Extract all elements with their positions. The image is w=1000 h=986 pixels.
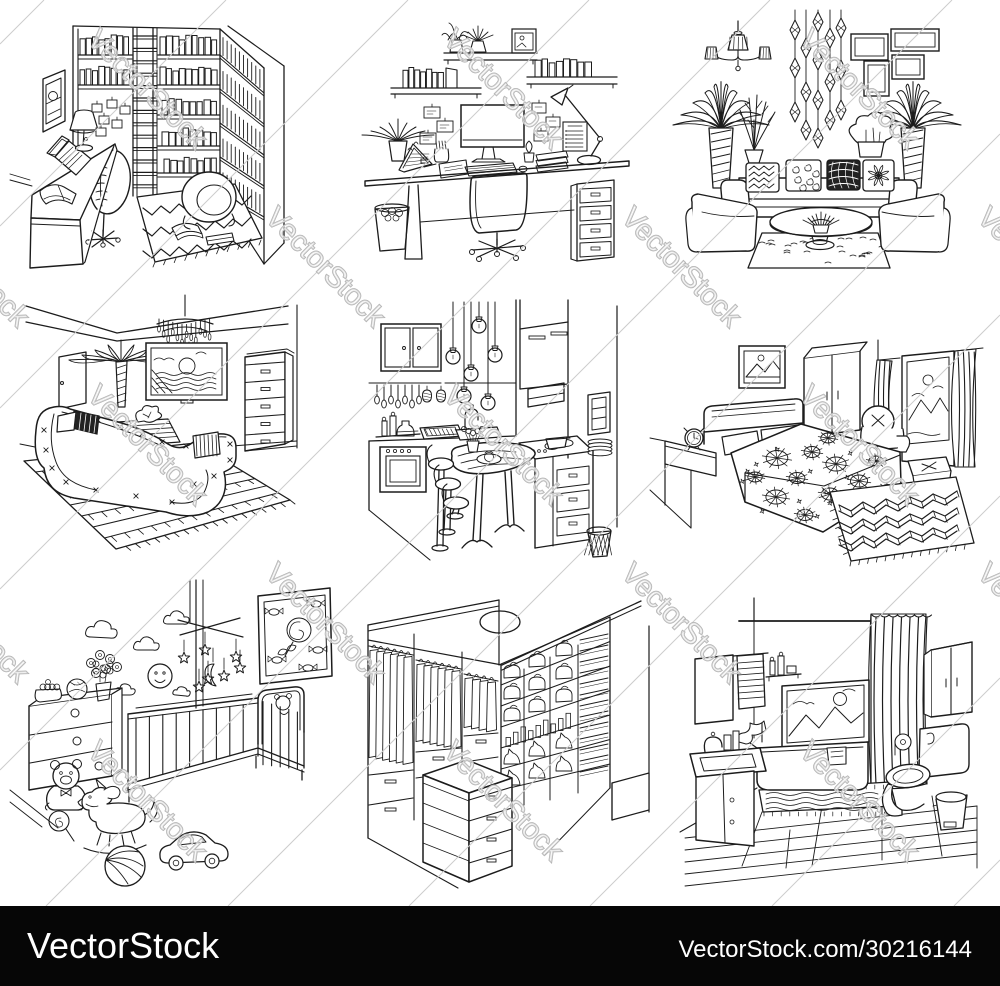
svg-text:VectorStock: VectorStock: [27, 925, 220, 966]
svg-text:VectorStock: VectorStock: [615, 557, 747, 689]
svg-text:VectorStock: VectorStock: [971, 557, 1000, 689]
svg-text:VectorStock: VectorStock: [971, 201, 1000, 333]
svg-text:VectorStock.com/30216144: VectorStock.com/30216144: [678, 936, 972, 963]
svg-text:VectorStock: VectorStock: [259, 201, 391, 333]
svg-text:VectorStock: VectorStock: [437, 23, 569, 155]
svg-text:VectorStock: VectorStock: [0, 557, 35, 689]
